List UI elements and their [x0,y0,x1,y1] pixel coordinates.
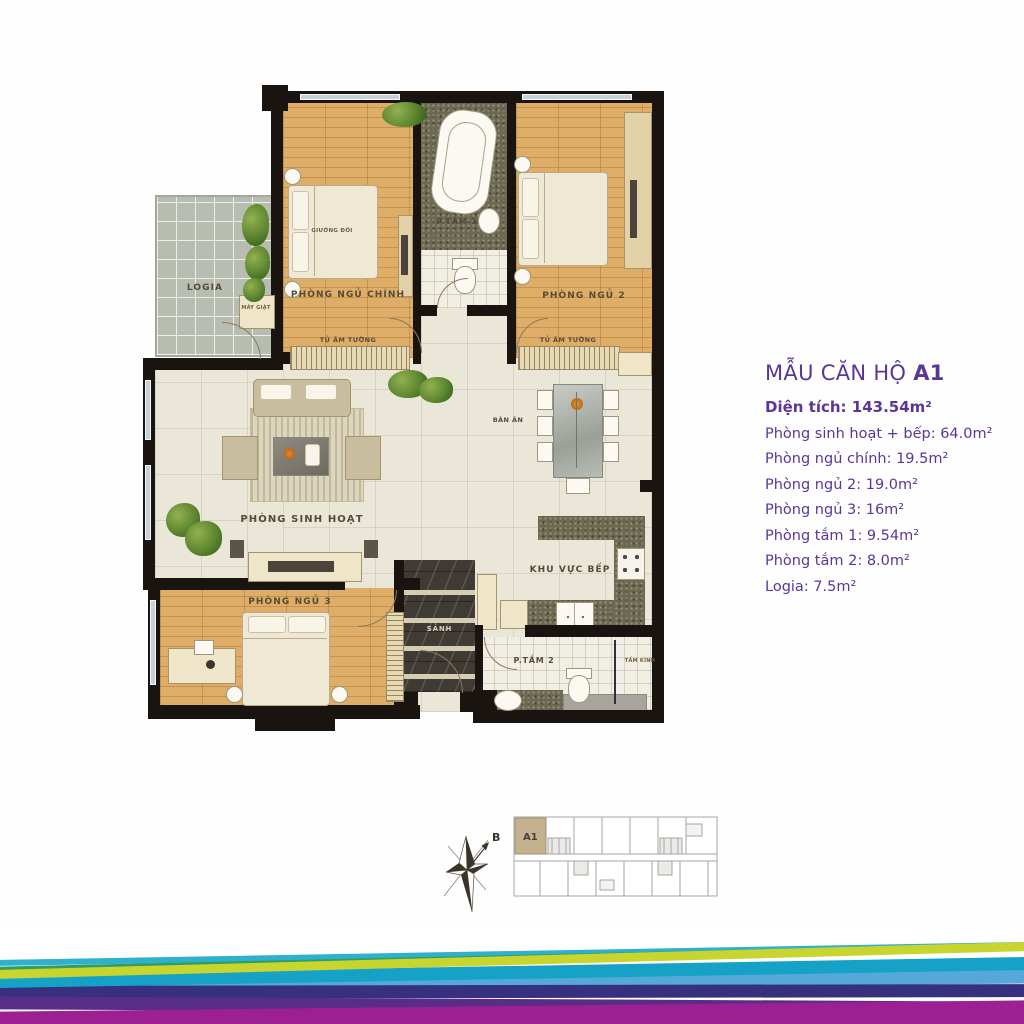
info-line-master: Phòng ngủ chính: 19.5m² [765,451,995,467]
bedroom3-nightstand [331,686,348,703]
hall-label: SẢNH [404,626,475,634]
hall-marble-band [404,618,475,623]
bedroom2-blanket-line [544,173,545,263]
shoe-cabinet [477,574,497,630]
bedroom2-tv [630,180,637,238]
window-bedroom2-top [522,94,632,100]
master-pillow [292,232,309,272]
wall-bath1-right [507,103,516,364]
window-living-left-a [145,380,151,440]
window-master-top [300,94,400,100]
hall-marble-band [404,590,475,595]
fridge [500,600,528,629]
bathroom2-basin [494,690,522,711]
bottom-stripe-band [0,928,1024,1024]
bedroom2-pillow [522,178,539,217]
info-line-area: Diện tích: 143.54m² [765,398,995,416]
wall-logia-living [143,358,283,370]
glass-panel-line [614,640,616,704]
wall-right-jog [640,480,664,492]
kitchen-sink-icon [556,602,594,626]
info-line-bath1: Phòng tắm 1: 9.54m² [765,528,995,544]
info-line-living: Phòng sinh hoạt + bếp: 64.0m² [765,426,995,442]
title-prefix: MẪU CĂN HỘ [765,361,906,385]
coffee-table-book [305,444,320,466]
dining-table-label: BÀN ĂN [480,417,536,424]
bedroom3-chair [194,640,214,655]
north-label: B [492,831,500,844]
dining-chair [537,442,553,462]
bedroom2-bench [618,352,652,376]
wall-bed3-bottom-stub [255,719,335,731]
coffee-table-dish [284,448,295,459]
living-tv [268,561,334,572]
armchair-left [222,436,258,480]
wall-bath1-bottom-b [467,305,507,316]
washing-machine-label: MÁY GIẶT [237,306,275,312]
bathroom1-label: P.TẮM 1 [421,218,493,227]
page: LOGIA MÁY GIẶT PHÒNG NGỦ CHÍNH GIƯỜNG ĐÔ… [0,0,1024,1024]
bedroom3-nightstand [226,686,243,703]
wall-bath2-left [475,625,483,712]
wardrobe1-label: TỦ ÂM TƯỜNG [288,337,408,344]
dining-chair [603,390,619,410]
dining-chair [603,416,619,436]
window-living-left-b [145,465,151,540]
living-room-label: PHÒNG SINH HOẠT [192,514,412,525]
master-bedroom-label: PHÒNG NGỦ CHÍNH [283,291,413,301]
wall-bath1-bottom-a [421,305,437,316]
wall-bath2-top [525,625,664,637]
bedroom2-nightstand [514,268,531,285]
plant [185,521,222,556]
sofa-cushion [305,384,337,400]
dining-chair [537,416,553,436]
key-plan-unit-label: A1 [523,832,538,843]
glass-panel-label: TẤM KÍNH [618,659,662,665]
speaker-stool [364,540,378,558]
logia-label: LOGIA [165,284,245,294]
title-unit: A1 [913,361,944,385]
info-panel: MẪU CĂN HỘ A1 Diện tích: 143.54m² Phòng … [765,361,995,604]
wall-bed3-bottom [148,705,420,719]
bedroom2-wardrobe-unit [624,112,652,269]
dining-chair [566,478,590,494]
sofa-cushion [260,384,292,400]
bathroom2-label: P.TẮM 2 [498,657,570,666]
kitchen-label: KHU VỰC BẾP [505,566,635,576]
page-title: MẪU CĂN HỘ A1 [765,361,995,385]
bedroom3-blanket-line [243,638,327,639]
hall-marble-band [404,646,475,651]
info-line-bed2: Phòng ngủ 2: 19.0m² [765,477,995,493]
wall-bath1-left [413,103,421,364]
dining-chair [603,442,619,462]
coffee-table [273,437,329,476]
bathroom2-toilet-bowl [568,675,590,703]
double-bed-label: GIƯỜNG ĐÔI [292,228,372,234]
wardrobe-bedroom3 [386,612,404,702]
master-nightstand [284,168,301,185]
plant [245,246,270,280]
wall-bath2-bottom [481,710,664,723]
window-bed3-left [150,600,156,685]
master-tv [401,235,408,275]
bedroom2-label: PHÒNG NGỦ 2 [516,292,652,302]
compass-rose: B [436,824,506,916]
info-line-logia: Logia: 7.5m² [765,579,995,595]
plant [243,278,265,302]
info-line-bath2: Phòng tắm 2: 8.0m² [765,553,995,569]
dining-flower [571,398,583,410]
plant [382,102,426,127]
info-line-bed3: Phòng ngủ 3: 16m² [765,502,995,518]
building-key-plan: A1 [510,810,722,906]
armchair-right [345,436,381,480]
plant [419,377,453,403]
bedroom2-pillow [522,219,539,259]
plant [242,204,269,246]
bedroom3-pillow [248,616,286,633]
dining-runner [576,392,577,468]
bedroom3-lamp [206,660,215,669]
bedroom2-nightstand [514,156,531,173]
compass-star [444,836,489,912]
speaker-stool [230,540,244,558]
bedroom3-label: PHÒNG NGỦ 3 [225,598,355,608]
master-pillow [292,191,309,230]
dining-chair [537,390,553,410]
bedroom3-pillow [288,616,326,633]
wardrobe2-label: TỦ ÂM TƯỜNG [518,337,618,344]
